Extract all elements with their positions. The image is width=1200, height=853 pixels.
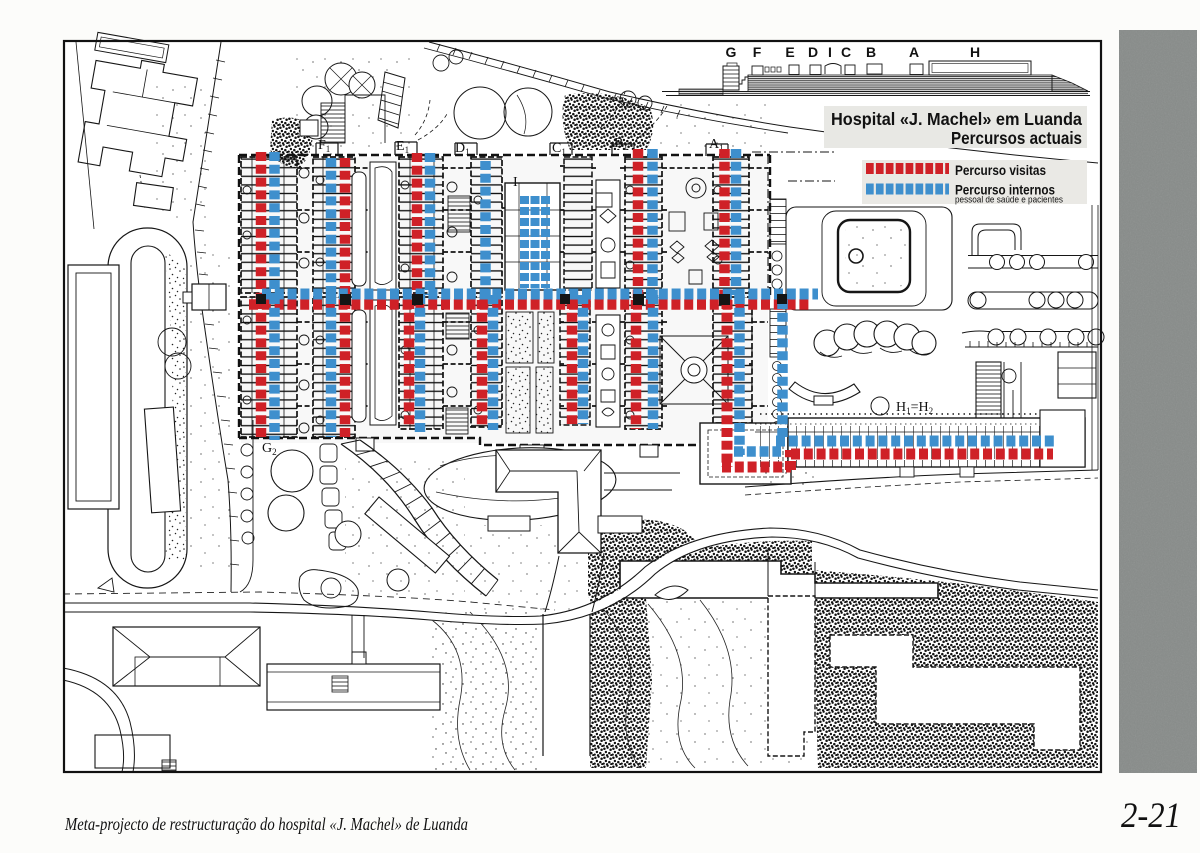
svg-text:I: I xyxy=(828,44,832,60)
svg-text:G: G xyxy=(726,44,737,60)
svg-text:2-21: 2-21 xyxy=(1121,795,1181,835)
svg-text:Hospital «J. Machel» em Luanda: Hospital «J. Machel» em Luanda xyxy=(831,109,1082,129)
svg-text:pessoal de saúde e pacientes: pessoal de saúde e pacientes xyxy=(955,195,1063,206)
svg-text:Percursos actuais: Percursos actuais xyxy=(951,128,1082,148)
svg-text:C: C xyxy=(841,44,851,60)
svg-text:Meta-projecto de restructuraçã: Meta-projecto de restructuração do hospi… xyxy=(64,814,468,834)
svg-text:B: B xyxy=(866,44,876,60)
svg-text:E: E xyxy=(785,44,794,60)
svg-text:H: H xyxy=(970,44,980,60)
svg-text:Percurso visitas: Percurso visitas xyxy=(955,162,1046,178)
svg-text:I: I xyxy=(513,175,518,190)
svg-text:F: F xyxy=(753,44,762,60)
svg-text:A: A xyxy=(909,44,919,60)
svg-text:D: D xyxy=(808,44,818,60)
